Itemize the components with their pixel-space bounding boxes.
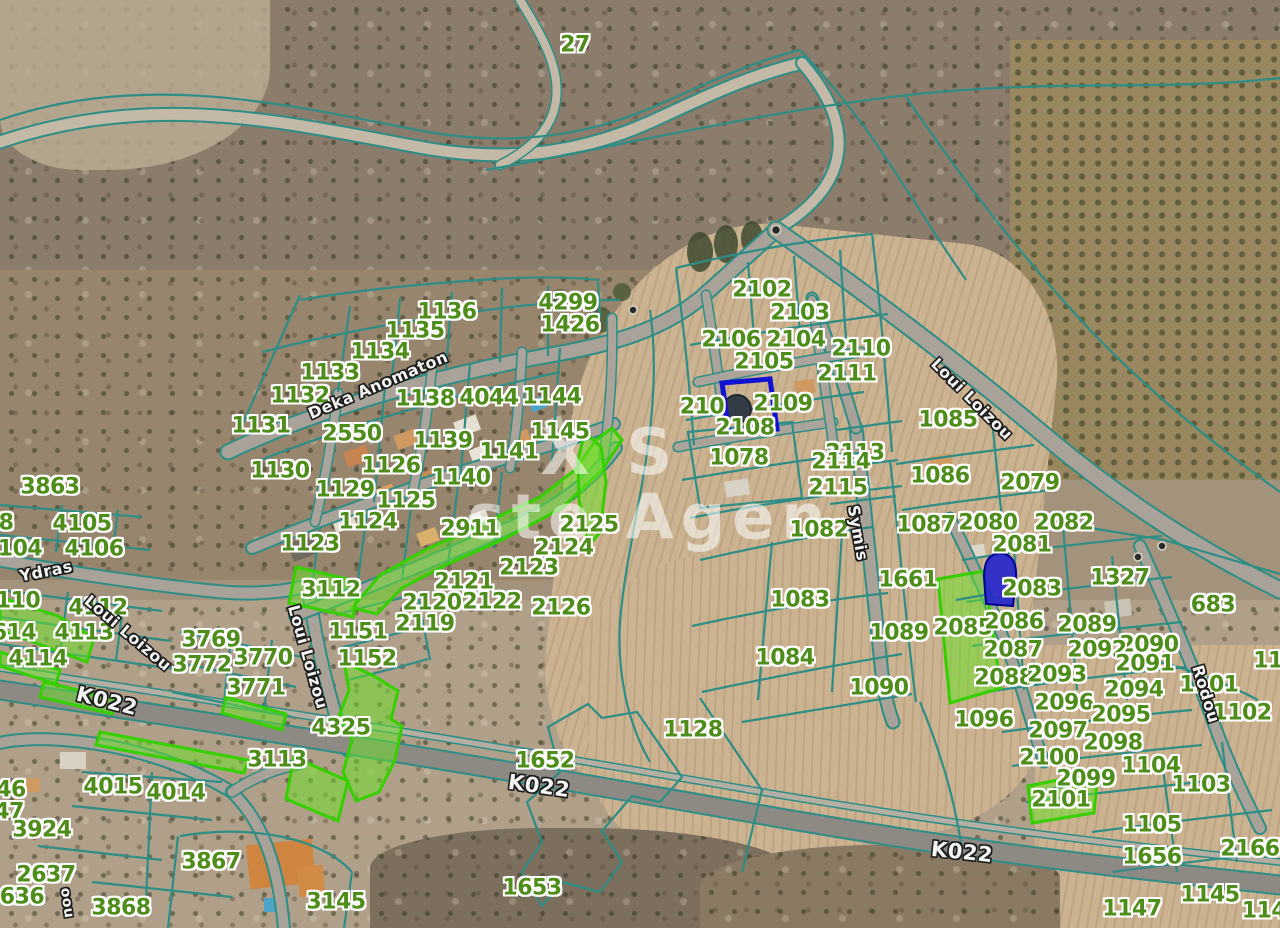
road-label: K022 bbox=[930, 837, 994, 867]
road-label: Loui Loizou bbox=[81, 591, 176, 675]
road-name-labels: Deka AnomatonYdrasLoui LoizouLoui Loizou… bbox=[0, 0, 1280, 928]
road-label: Loui Loizou bbox=[284, 603, 332, 712]
road-label: K022 bbox=[507, 770, 572, 802]
road-label: Deka Anomaton bbox=[305, 347, 450, 423]
satellite-cadastral-map[interactable]: X S ste Agen 271136113542991426113411331… bbox=[0, 0, 1280, 928]
road-label: Rodou bbox=[1188, 663, 1224, 726]
road-label: Symis bbox=[844, 504, 872, 563]
road-label: oou bbox=[57, 887, 77, 920]
road-label: Loui Loizou bbox=[927, 354, 1016, 443]
road-label: K022 bbox=[74, 682, 140, 720]
road-label: Ydras bbox=[18, 557, 74, 586]
